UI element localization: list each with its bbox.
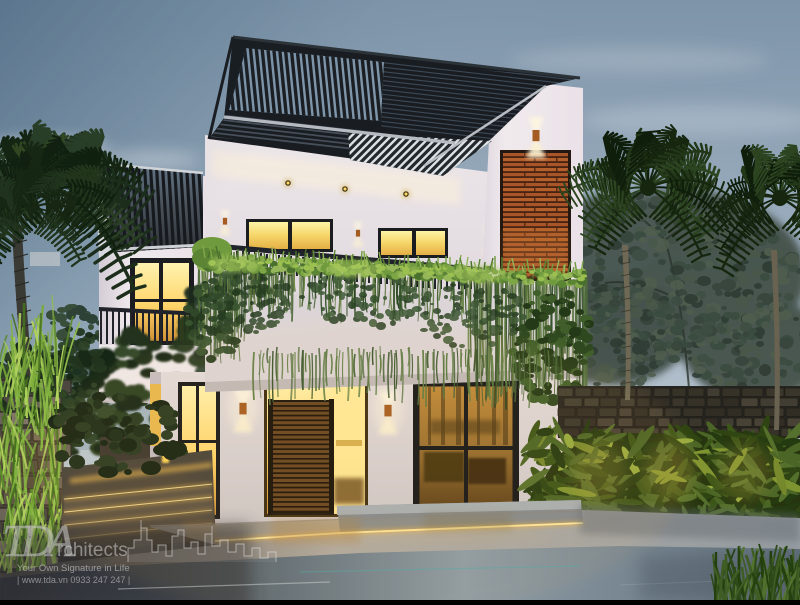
svg-text:| www.tda.vn 0933 247 247 |: | www.tda.vn 0933 247 247 | [17,575,130,585]
svg-text:rchitects: rchitects [57,540,128,561]
svg-text:Your Own Signature in Life: Your Own Signature in Life [17,563,130,574]
